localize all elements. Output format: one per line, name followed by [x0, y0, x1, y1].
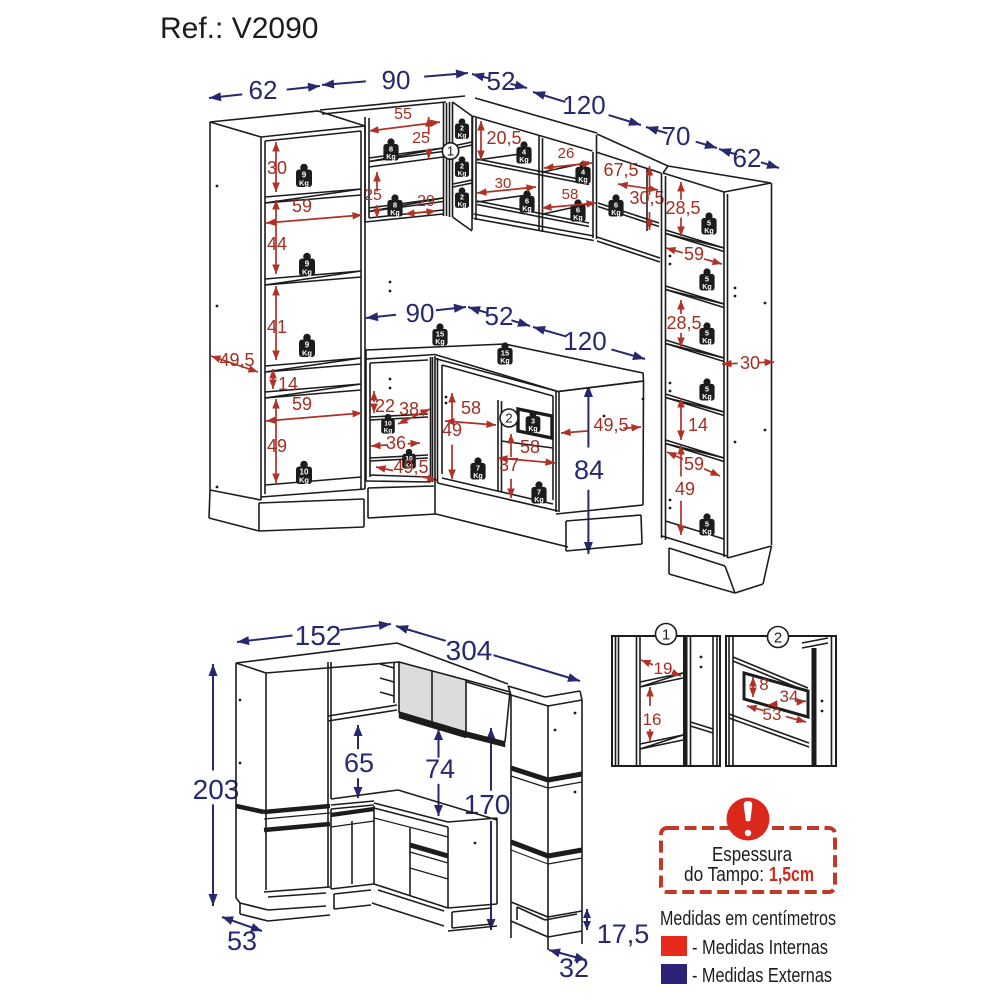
svg-text:Kg: Kg [702, 528, 711, 536]
svg-text:41: 41 [267, 317, 287, 337]
svg-text:- Medidas Externas: - Medidas Externas [692, 965, 832, 987]
svg-text:do Tampo:: do Tampo: [684, 864, 764, 886]
svg-text:Kg: Kg [704, 227, 713, 235]
svg-text:28,5: 28,5 [666, 313, 701, 333]
svg-text:Kg: Kg [435, 338, 444, 346]
svg-text:2: 2 [460, 164, 464, 171]
svg-text:3: 3 [531, 417, 535, 426]
svg-text:6: 6 [614, 201, 618, 210]
svg-text:Kg: Kg [386, 153, 395, 161]
svg-text:120: 120 [562, 90, 605, 120]
svg-text:53: 53 [763, 705, 782, 724]
svg-text:30: 30 [267, 158, 287, 178]
svg-text:30: 30 [740, 353, 760, 373]
svg-text:49: 49 [675, 479, 695, 499]
svg-text:58: 58 [461, 398, 481, 418]
svg-text:6: 6 [525, 197, 529, 206]
svg-text:84: 84 [574, 455, 604, 485]
svg-text:28,5: 28,5 [665, 198, 700, 218]
svg-text:Kg: Kg [611, 209, 620, 217]
svg-text:90: 90 [382, 65, 411, 95]
svg-text:38: 38 [399, 399, 419, 419]
svg-text:62: 62 [249, 75, 278, 105]
svg-text:10: 10 [384, 421, 392, 428]
svg-text:70: 70 [662, 121, 691, 151]
svg-text:2: 2 [774, 629, 782, 646]
svg-text:29: 29 [417, 193, 435, 210]
svg-text:170: 170 [464, 789, 511, 820]
svg-text:52: 52 [487, 66, 516, 96]
svg-text:19: 19 [654, 659, 673, 678]
svg-text:Kg: Kg [534, 496, 543, 504]
svg-text:Kg: Kg [573, 214, 582, 222]
svg-text:74: 74 [425, 754, 455, 784]
svg-text:14: 14 [688, 415, 708, 435]
svg-text:49: 49 [442, 420, 462, 440]
svg-text:Kg: Kg [458, 171, 467, 178]
svg-text:16: 16 [643, 710, 662, 729]
svg-text:49: 49 [267, 436, 287, 456]
svg-text:65: 65 [344, 748, 374, 778]
svg-text:58: 58 [520, 437, 540, 457]
svg-text:67,5: 67,5 [603, 160, 638, 180]
svg-text:26: 26 [558, 145, 575, 162]
svg-text:17,5: 17,5 [597, 919, 650, 949]
svg-text:34: 34 [780, 687, 799, 706]
svg-text:52: 52 [485, 301, 514, 331]
svg-text:49,5: 49,5 [593, 415, 628, 435]
svg-text:22: 22 [375, 396, 395, 416]
svg-text:120: 120 [563, 326, 606, 356]
svg-text:15: 15 [436, 330, 445, 339]
svg-text:59: 59 [292, 394, 312, 414]
svg-text:6: 6 [576, 206, 580, 215]
svg-text:7: 7 [537, 488, 541, 497]
svg-text:304: 304 [446, 635, 493, 666]
svg-text:Kg: Kg [702, 337, 711, 345]
svg-text:62: 62 [733, 143, 762, 173]
svg-text:49,5: 49,5 [393, 457, 428, 477]
svg-text:Kg: Kg [390, 209, 399, 217]
svg-text:55: 55 [394, 106, 412, 123]
svg-text:152: 152 [295, 620, 342, 651]
svg-text:25: 25 [412, 130, 430, 147]
svg-text:49,5: 49,5 [219, 350, 254, 370]
svg-text:Kg: Kg [458, 202, 467, 209]
svg-text:20,5: 20,5 [486, 128, 521, 148]
svg-text:1,5cm: 1,5cm [769, 864, 814, 886]
svg-text:8: 8 [393, 201, 397, 210]
svg-text:Kg: Kg [578, 176, 587, 184]
svg-text:Kg: Kg [519, 156, 528, 164]
svg-text:1: 1 [662, 626, 670, 643]
svg-text:15: 15 [501, 349, 510, 358]
svg-text:25: 25 [364, 187, 382, 204]
svg-text:7: 7 [476, 464, 480, 473]
svg-text:Kg: Kg [458, 133, 467, 140]
svg-text:Ref.: V2090: Ref.: V2090 [160, 12, 318, 45]
svg-text:44: 44 [267, 234, 287, 254]
svg-text:Kg: Kg [522, 205, 531, 213]
svg-text:- Medidas Internas: - Medidas Internas [692, 937, 828, 959]
svg-text:2: 2 [460, 195, 464, 202]
svg-text:53: 53 [227, 926, 257, 956]
svg-text:59: 59 [684, 454, 704, 474]
svg-text:8: 8 [759, 675, 768, 694]
svg-text:59: 59 [292, 196, 312, 216]
svg-text:2: 2 [460, 126, 464, 133]
svg-text:Espessura: Espessura [712, 844, 793, 866]
svg-text:Kg: Kg [302, 268, 312, 277]
svg-text:90: 90 [406, 298, 435, 328]
svg-text:14: 14 [278, 374, 298, 394]
svg-text:Kg: Kg [302, 349, 312, 358]
svg-text:Kg: Kg [702, 393, 711, 401]
svg-text:Kg: Kg [299, 179, 309, 188]
svg-text:59: 59 [684, 244, 704, 264]
svg-text:1: 1 [447, 144, 454, 159]
svg-text:30: 30 [495, 175, 512, 192]
svg-text:203: 203 [193, 774, 240, 805]
svg-text:32: 32 [559, 953, 589, 983]
svg-text:30,5: 30,5 [629, 188, 664, 208]
svg-text:36: 36 [386, 433, 406, 453]
svg-text:58: 58 [562, 186, 579, 203]
svg-text:Kg: Kg [702, 283, 711, 291]
svg-text:Medidas em centímetros: Medidas em centímetros [660, 908, 836, 930]
svg-text:37: 37 [499, 455, 519, 475]
svg-text:Kg: Kg [299, 476, 309, 485]
svg-text:Kg: Kg [528, 426, 537, 433]
svg-text:Kg: Kg [500, 357, 509, 365]
svg-text:2: 2 [505, 411, 512, 426]
svg-text:8: 8 [389, 145, 393, 154]
svg-text:Kg: Kg [473, 472, 482, 480]
